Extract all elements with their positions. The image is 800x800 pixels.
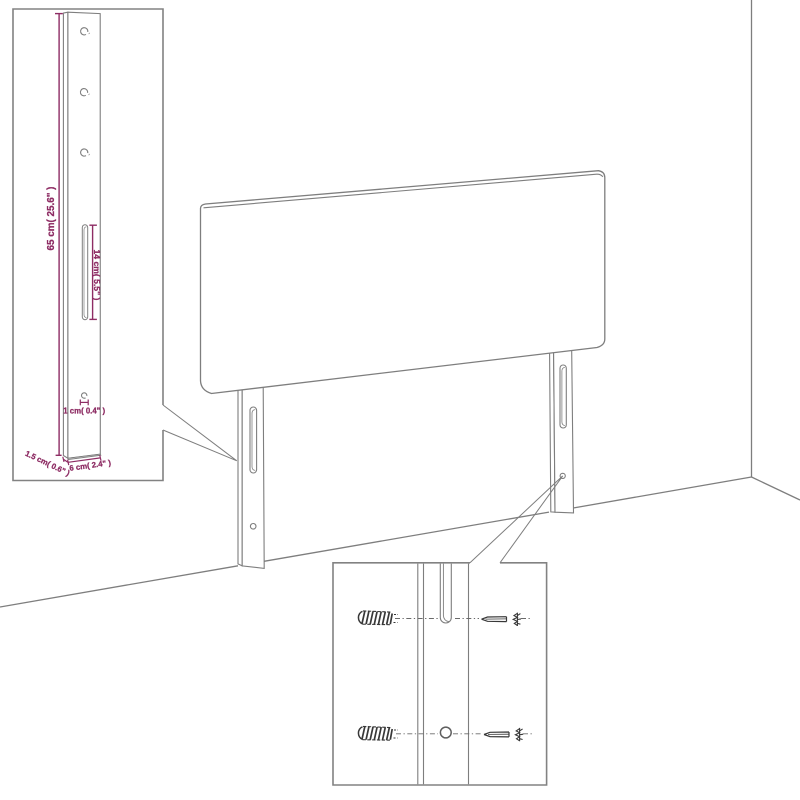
svg-text:65 cm( 25.6" ): 65 cm( 25.6" ) — [46, 187, 57, 251]
svg-text:1 cm( 0.4" ): 1 cm( 0.4" ) — [63, 407, 105, 416]
svg-text:14 cm( 5.5" ): 14 cm( 5.5" ) — [92, 250, 102, 301]
